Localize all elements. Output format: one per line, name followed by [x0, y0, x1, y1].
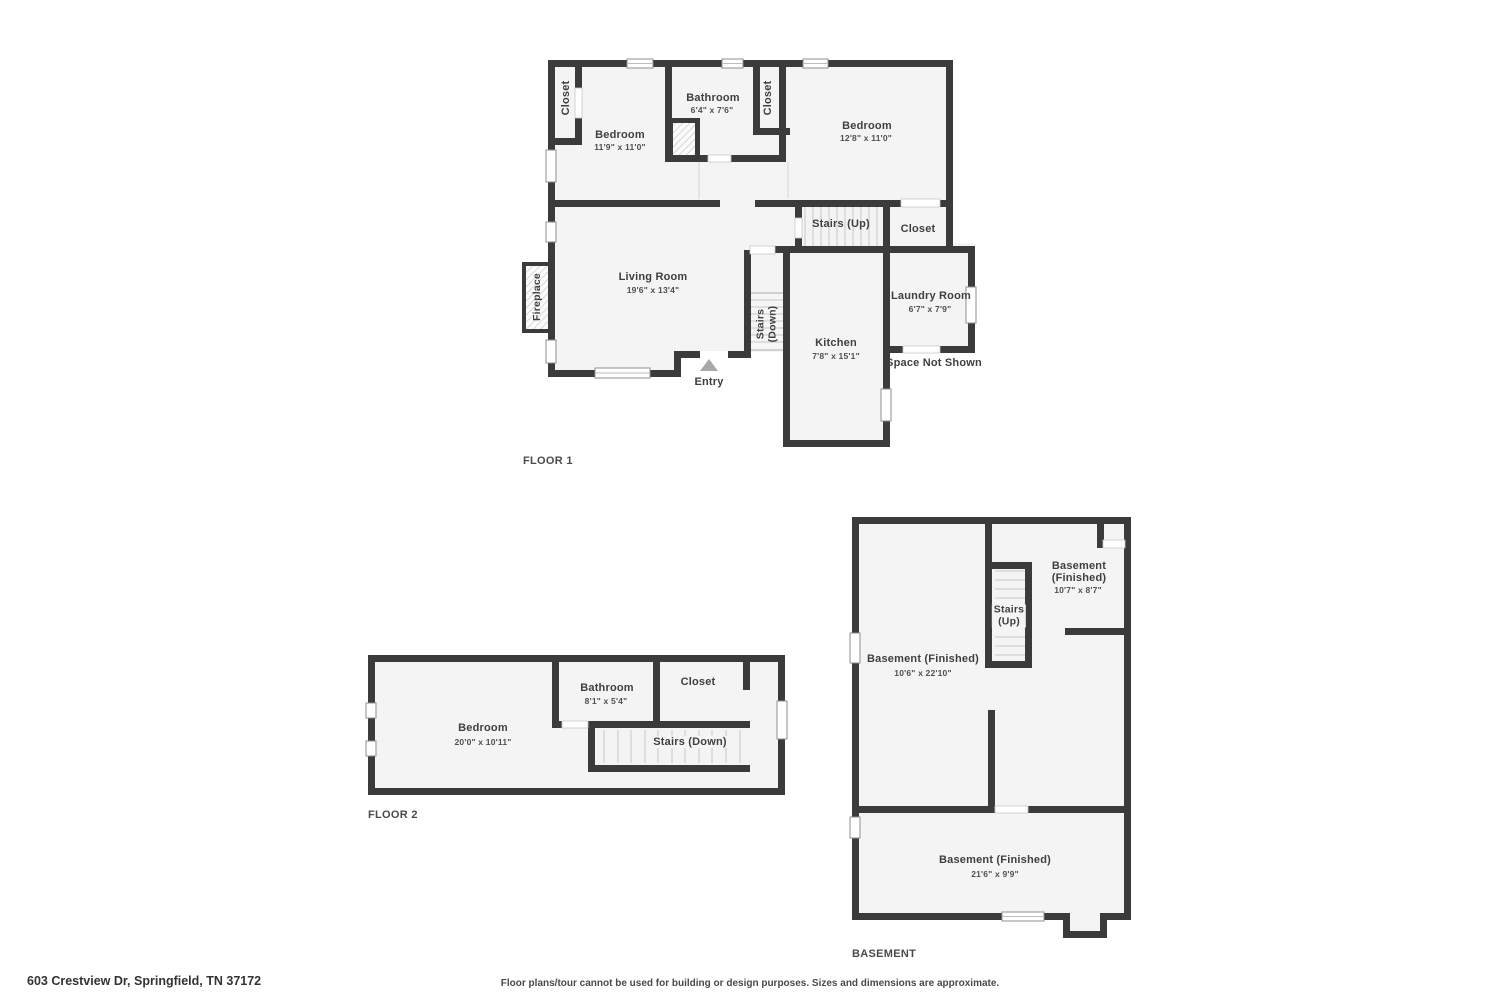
- floor1-bedroom-left-dims: 11'9" x 11'0": [594, 142, 646, 152]
- floor1-closet-top-left-label: Closet: [560, 81, 572, 116]
- laundry-room-dims: 6'7" x 7'9": [909, 304, 952, 314]
- floor1-stairs-up-label: Stairs (Up): [812, 218, 870, 230]
- floor2-door-openings: [562, 721, 588, 728]
- floor2-title: FLOOR 2: [368, 809, 418, 821]
- fireplace-label: Fireplace: [531, 273, 543, 321]
- floor1-stairs-down-label: Stairs (Down): [756, 306, 779, 343]
- living-room-dims: 19'6" x 13'4": [627, 285, 680, 295]
- entry-label: Entry: [694, 376, 723, 388]
- kitchen-label: Kitchen: [815, 337, 857, 349]
- space-not-shown-label: Space Not Shown: [886, 357, 982, 369]
- floor2-closet-label: Closet: [681, 676, 716, 688]
- entry-arrow-icon: [700, 359, 718, 371]
- floor1-bathroom-dims: 6'4" x 7'6": [691, 105, 734, 115]
- floor2-bathroom-dims: 8'1" x 5'4": [585, 696, 628, 706]
- disclaimer-text: Floor plans/tour cannot be used for buil…: [0, 978, 1500, 989]
- basement-plan: Basement (Finished) 10'7" x 8'7" Stairs …: [845, 510, 1140, 965]
- floor1-plan: Closet Bedroom 11'9" x 11'0" Bathroom 6'…: [515, 50, 990, 470]
- floorplan-page: Closet Bedroom 11'9" x 11'0" Bathroom 6'…: [0, 0, 1500, 999]
- floor1-title: FLOOR 1: [523, 455, 573, 467]
- basement-room-top-right-dims: 10'7" x 8'7": [1054, 585, 1102, 595]
- floor1-closet-top-mid-label: Closet: [762, 81, 774, 116]
- floor2-bedroom-label: Bedroom: [458, 722, 508, 734]
- floor1-bedroom-left-label: Bedroom: [595, 129, 645, 141]
- floor2-stairs-down-label: Stairs (Down): [651, 736, 729, 748]
- floor1-bathroom-label: Bathroom: [686, 92, 740, 104]
- floor1-bedroom-right-label: Bedroom: [842, 120, 892, 132]
- basement-room-left-label: Basement (Finished): [867, 653, 979, 665]
- basement-room-bottom-dims: 21'6" x 9'9": [971, 869, 1019, 879]
- kitchen-dims: 7'8" x 15'1": [812, 351, 860, 361]
- floor2-bathroom-label: Bathroom: [580, 682, 634, 694]
- basement-stairs-up-label: Stairs (Up): [992, 605, 1026, 628]
- basement-room-bottom-label: Basement (Finished): [939, 854, 1051, 866]
- floor2-bedroom-dims: 20'0" x 10'11": [455, 737, 512, 747]
- floor2-plan: Bedroom 20'0" x 10'11" Bathroom 8'1" x 5…: [360, 645, 800, 830]
- floor2-drawing: [360, 645, 800, 830]
- basement-room-left-dims: 10'6" x 22'10": [894, 668, 951, 678]
- floor1-shower: [668, 118, 700, 160]
- basement-title: BASEMENT: [852, 948, 916, 960]
- laundry-room-label: Laundry Room: [891, 290, 971, 302]
- floor1-bedroom-right-dims: 12'8" x 11'0": [840, 133, 892, 143]
- basement-room-top-right-label2: (Finished): [1052, 572, 1107, 584]
- basement-room-top-right-label: Basement: [1052, 560, 1106, 572]
- floor1-drawing: [515, 50, 990, 470]
- living-room-label: Living Room: [619, 271, 688, 283]
- floor1-closet-mid-label: Closet: [901, 223, 936, 235]
